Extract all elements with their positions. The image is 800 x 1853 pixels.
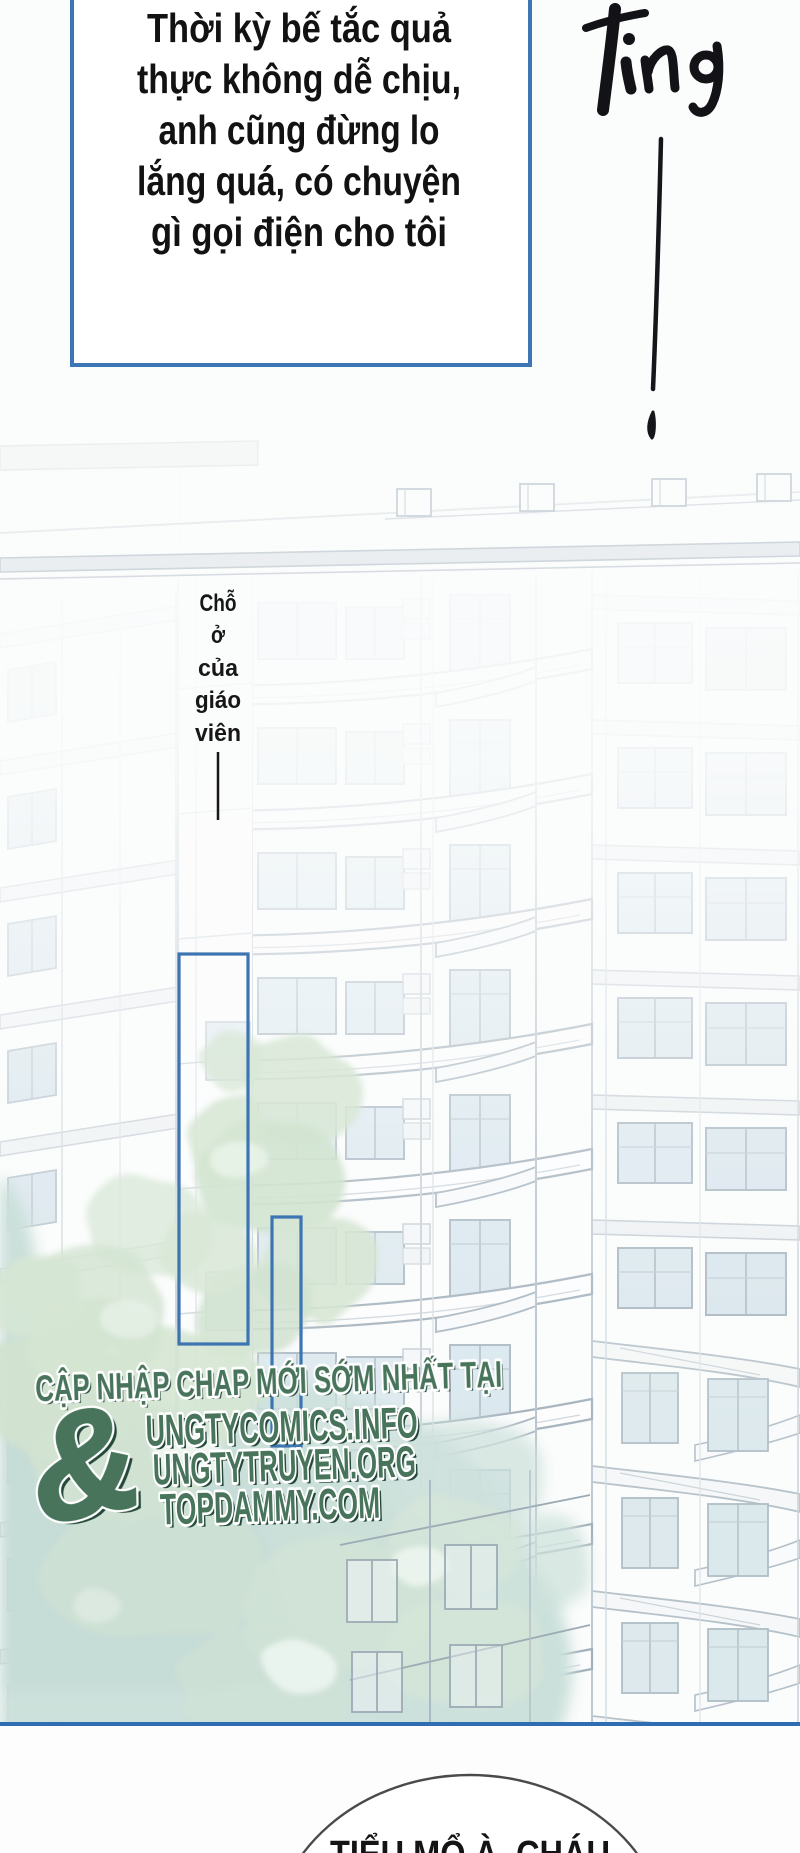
svg-text:TIỂU MỔ À, CHÁU: TIỂU MỔ À, CHÁU: [330, 1831, 610, 1853]
svg-text:của: của: [198, 655, 239, 682]
svg-text:anh cũng đừng lo: anh cũng đừng lo: [159, 107, 440, 153]
svg-text:ở: ở: [211, 622, 226, 649]
svg-text:thực không dễ chịu,: thực không dễ chịu,: [137, 56, 461, 102]
svg-text:gì gọi điện cho tôi: gì gọi điện cho tôi: [151, 209, 447, 255]
svg-text:viên: viên: [195, 720, 241, 747]
svg-text:TOPDAMMY.COM: TOPDAMMY.COM: [159, 1479, 380, 1535]
svg-text:Thời kỳ bế tắc quả: Thời kỳ bế tắc quả: [147, 5, 452, 51]
svg-text:giáo: giáo: [195, 687, 241, 714]
svg-text:lắng quá, có chuyện: lắng quá, có chuyện: [137, 158, 461, 204]
svg-text:Chỗ: Chỗ: [200, 589, 237, 617]
